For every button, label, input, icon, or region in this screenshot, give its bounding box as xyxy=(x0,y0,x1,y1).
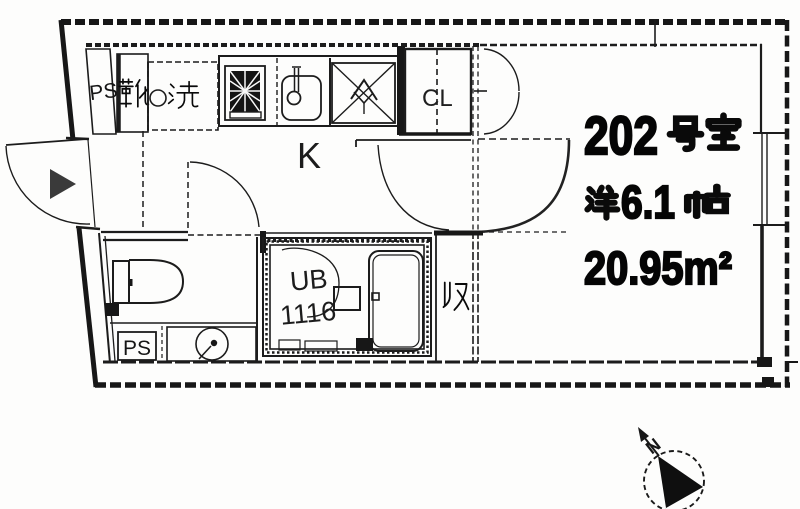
svg-text:202: 202 xyxy=(584,106,658,166)
svg-text:K: K xyxy=(297,135,321,176)
svg-text:PS: PS xyxy=(123,337,151,360)
svg-text:CL: CL xyxy=(422,85,453,112)
svg-text:6.1: 6.1 xyxy=(621,176,675,228)
svg-text:1116: 1116 xyxy=(279,296,337,331)
svg-text:UB: UB xyxy=(289,264,329,297)
svg-text:PS: PS xyxy=(88,79,119,105)
svg-text:20.95m²: 20.95m² xyxy=(584,242,732,294)
